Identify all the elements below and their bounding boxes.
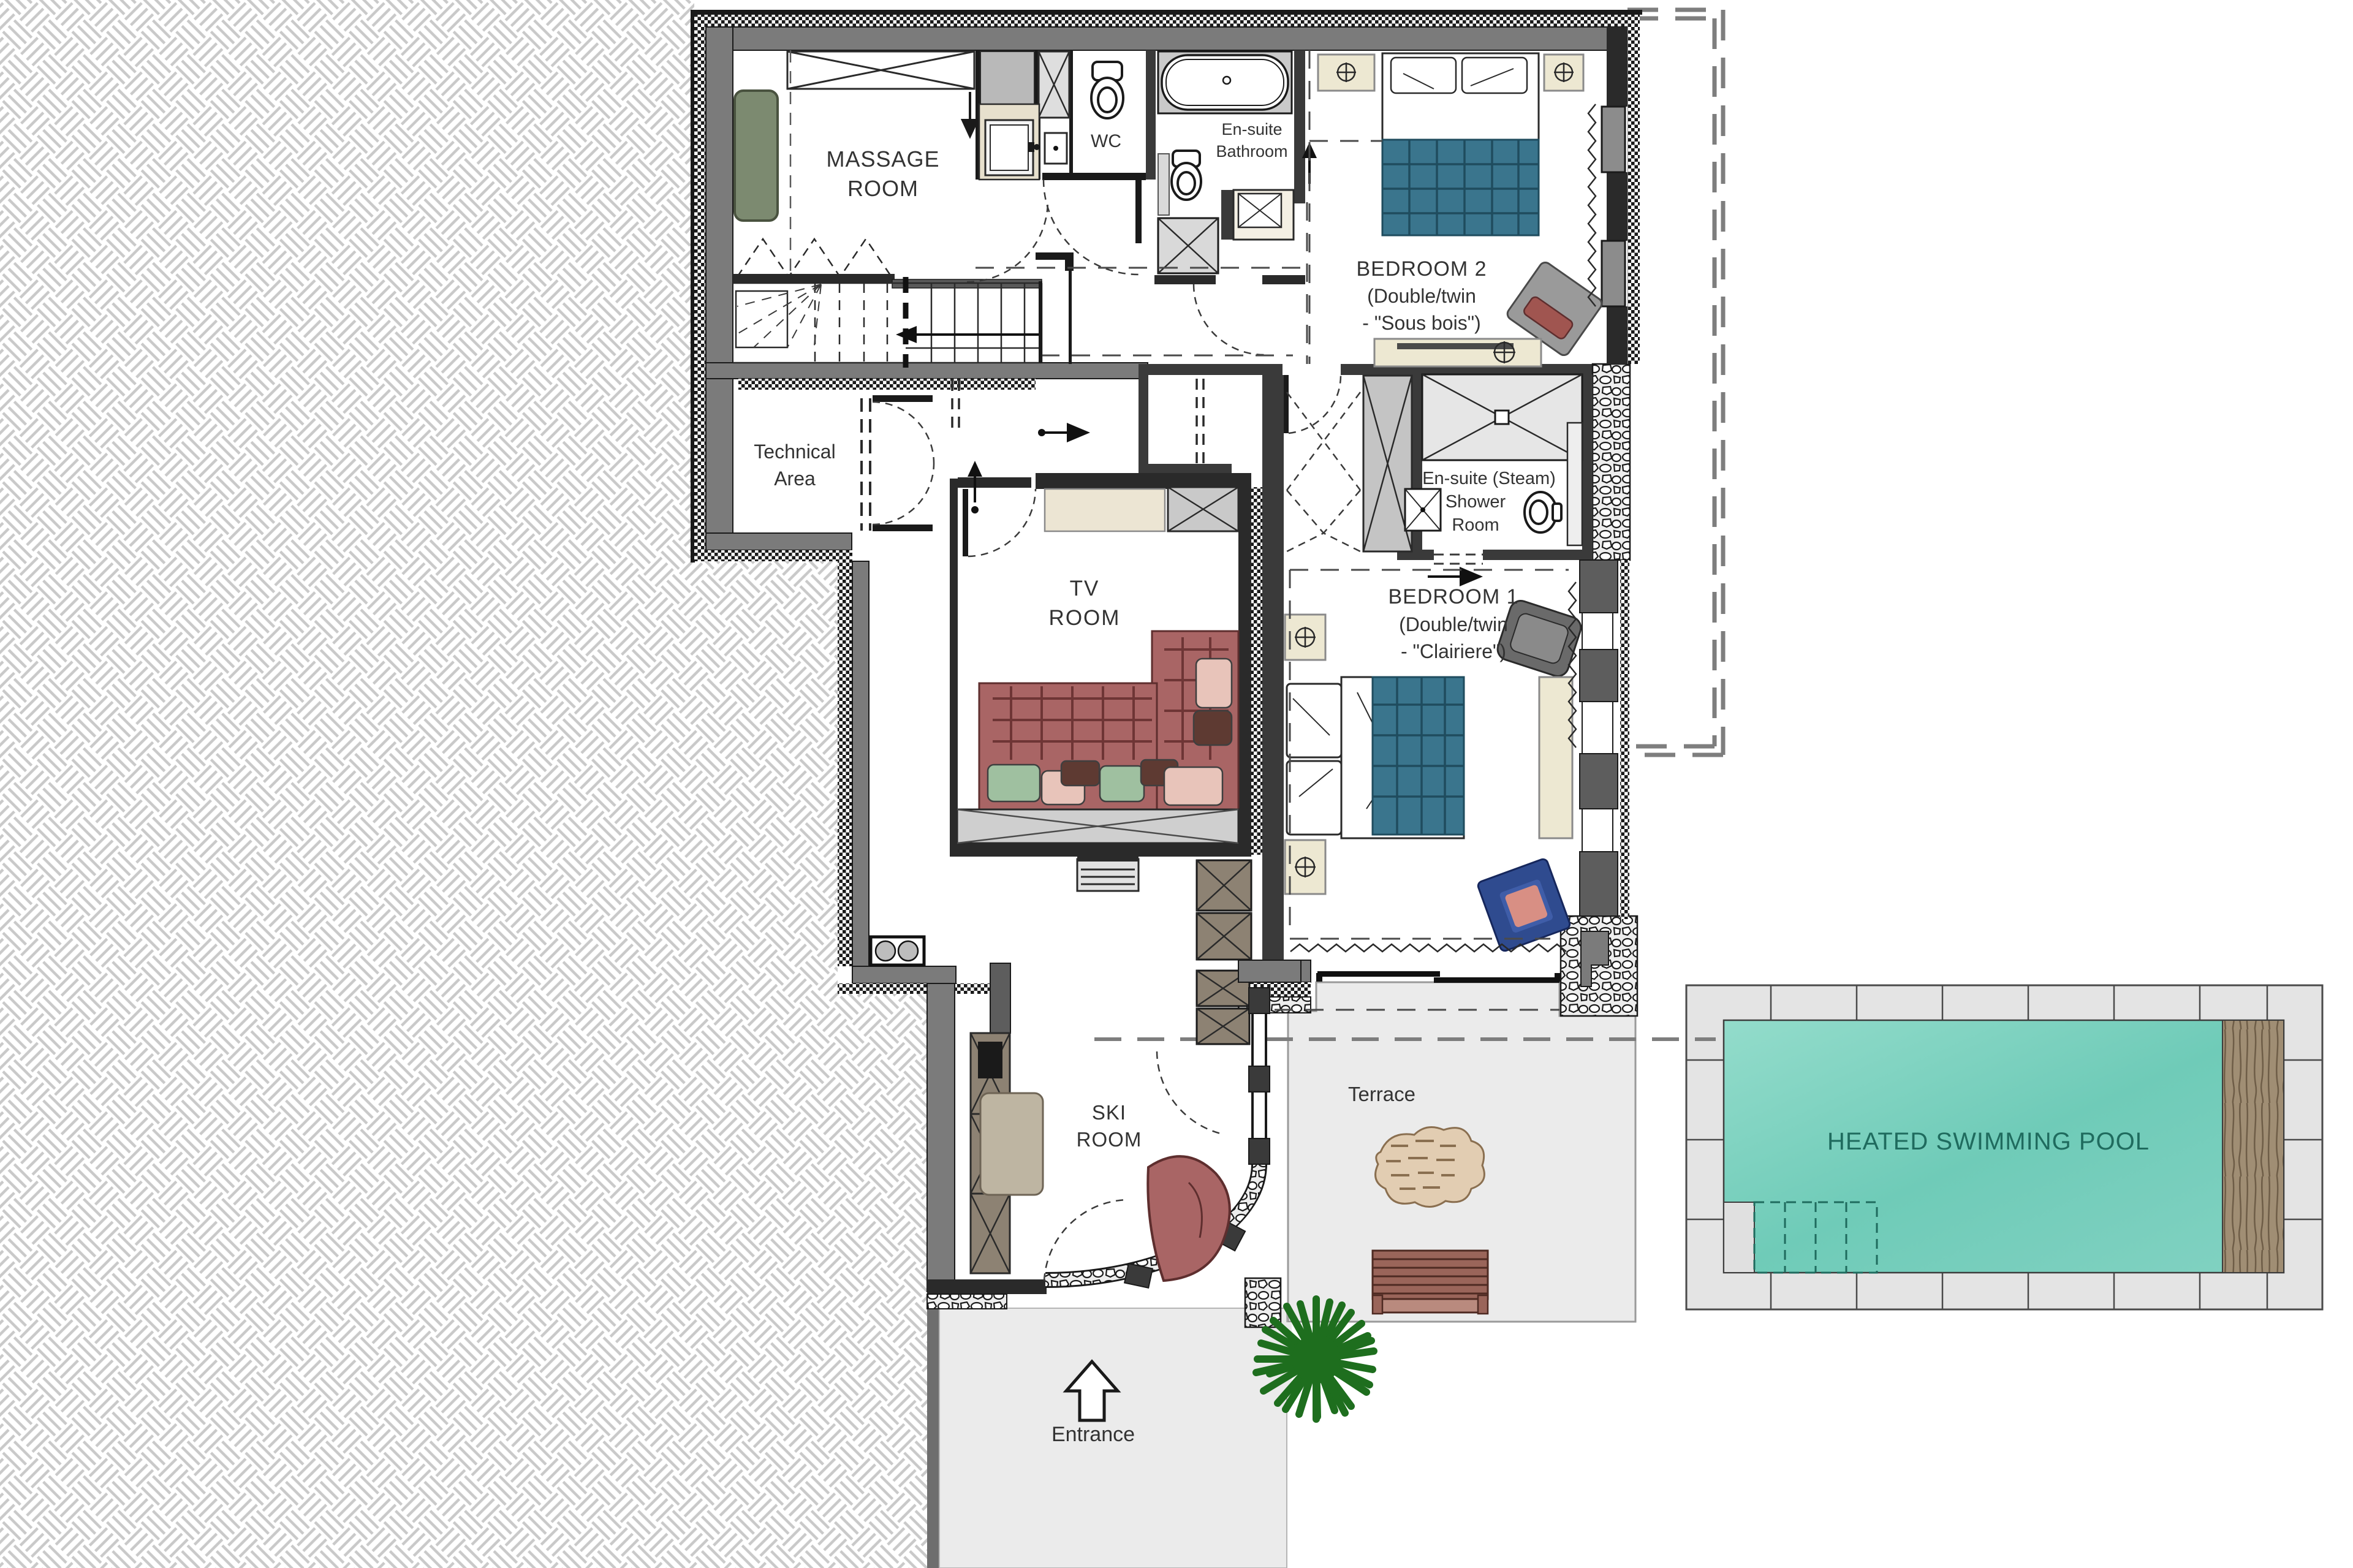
svg-text:Entrance: Entrance <box>1051 1423 1135 1446</box>
svg-text:MASSAGE: MASSAGE <box>826 146 939 172</box>
svg-text:(Double/twin: (Double/twin <box>1399 613 1508 635</box>
svg-text:ROOM: ROOM <box>1049 606 1121 630</box>
svg-text:Area: Area <box>774 468 816 490</box>
svg-text:Technical: Technical <box>754 441 835 463</box>
svg-text:HEATED SWIMMING POOL: HEATED SWIMMING POOL <box>1827 1128 2150 1155</box>
svg-text:En-suite: En-suite <box>1221 120 1282 138</box>
svg-text:Terrace: Terrace <box>1348 1083 1415 1105</box>
svg-text:(Double/twin: (Double/twin <box>1367 285 1476 307</box>
svg-text:ROOM: ROOM <box>847 176 919 201</box>
svg-text:ROOM: ROOM <box>1077 1128 1142 1151</box>
svg-text:- "Clairiere"): - "Clairiere") <box>1401 640 1506 662</box>
svg-text:WC: WC <box>1091 131 1121 151</box>
svg-text:BEDROOM 2: BEDROOM 2 <box>1356 257 1487 281</box>
svg-text:Bathroom: Bathroom <box>1216 142 1287 161</box>
svg-text:SKI: SKI <box>1092 1101 1126 1124</box>
svg-text:BEDROOM 1: BEDROOM 1 <box>1388 585 1518 608</box>
svg-text:Shower: Shower <box>1446 492 1506 512</box>
svg-text:En-suite (Steam): En-suite (Steam) <box>1422 469 1556 488</box>
svg-text:Room: Room <box>1452 515 1499 535</box>
svg-text:TV: TV <box>1070 577 1100 600</box>
svg-text:- "Sous bois"): - "Sous bois") <box>1362 312 1480 334</box>
